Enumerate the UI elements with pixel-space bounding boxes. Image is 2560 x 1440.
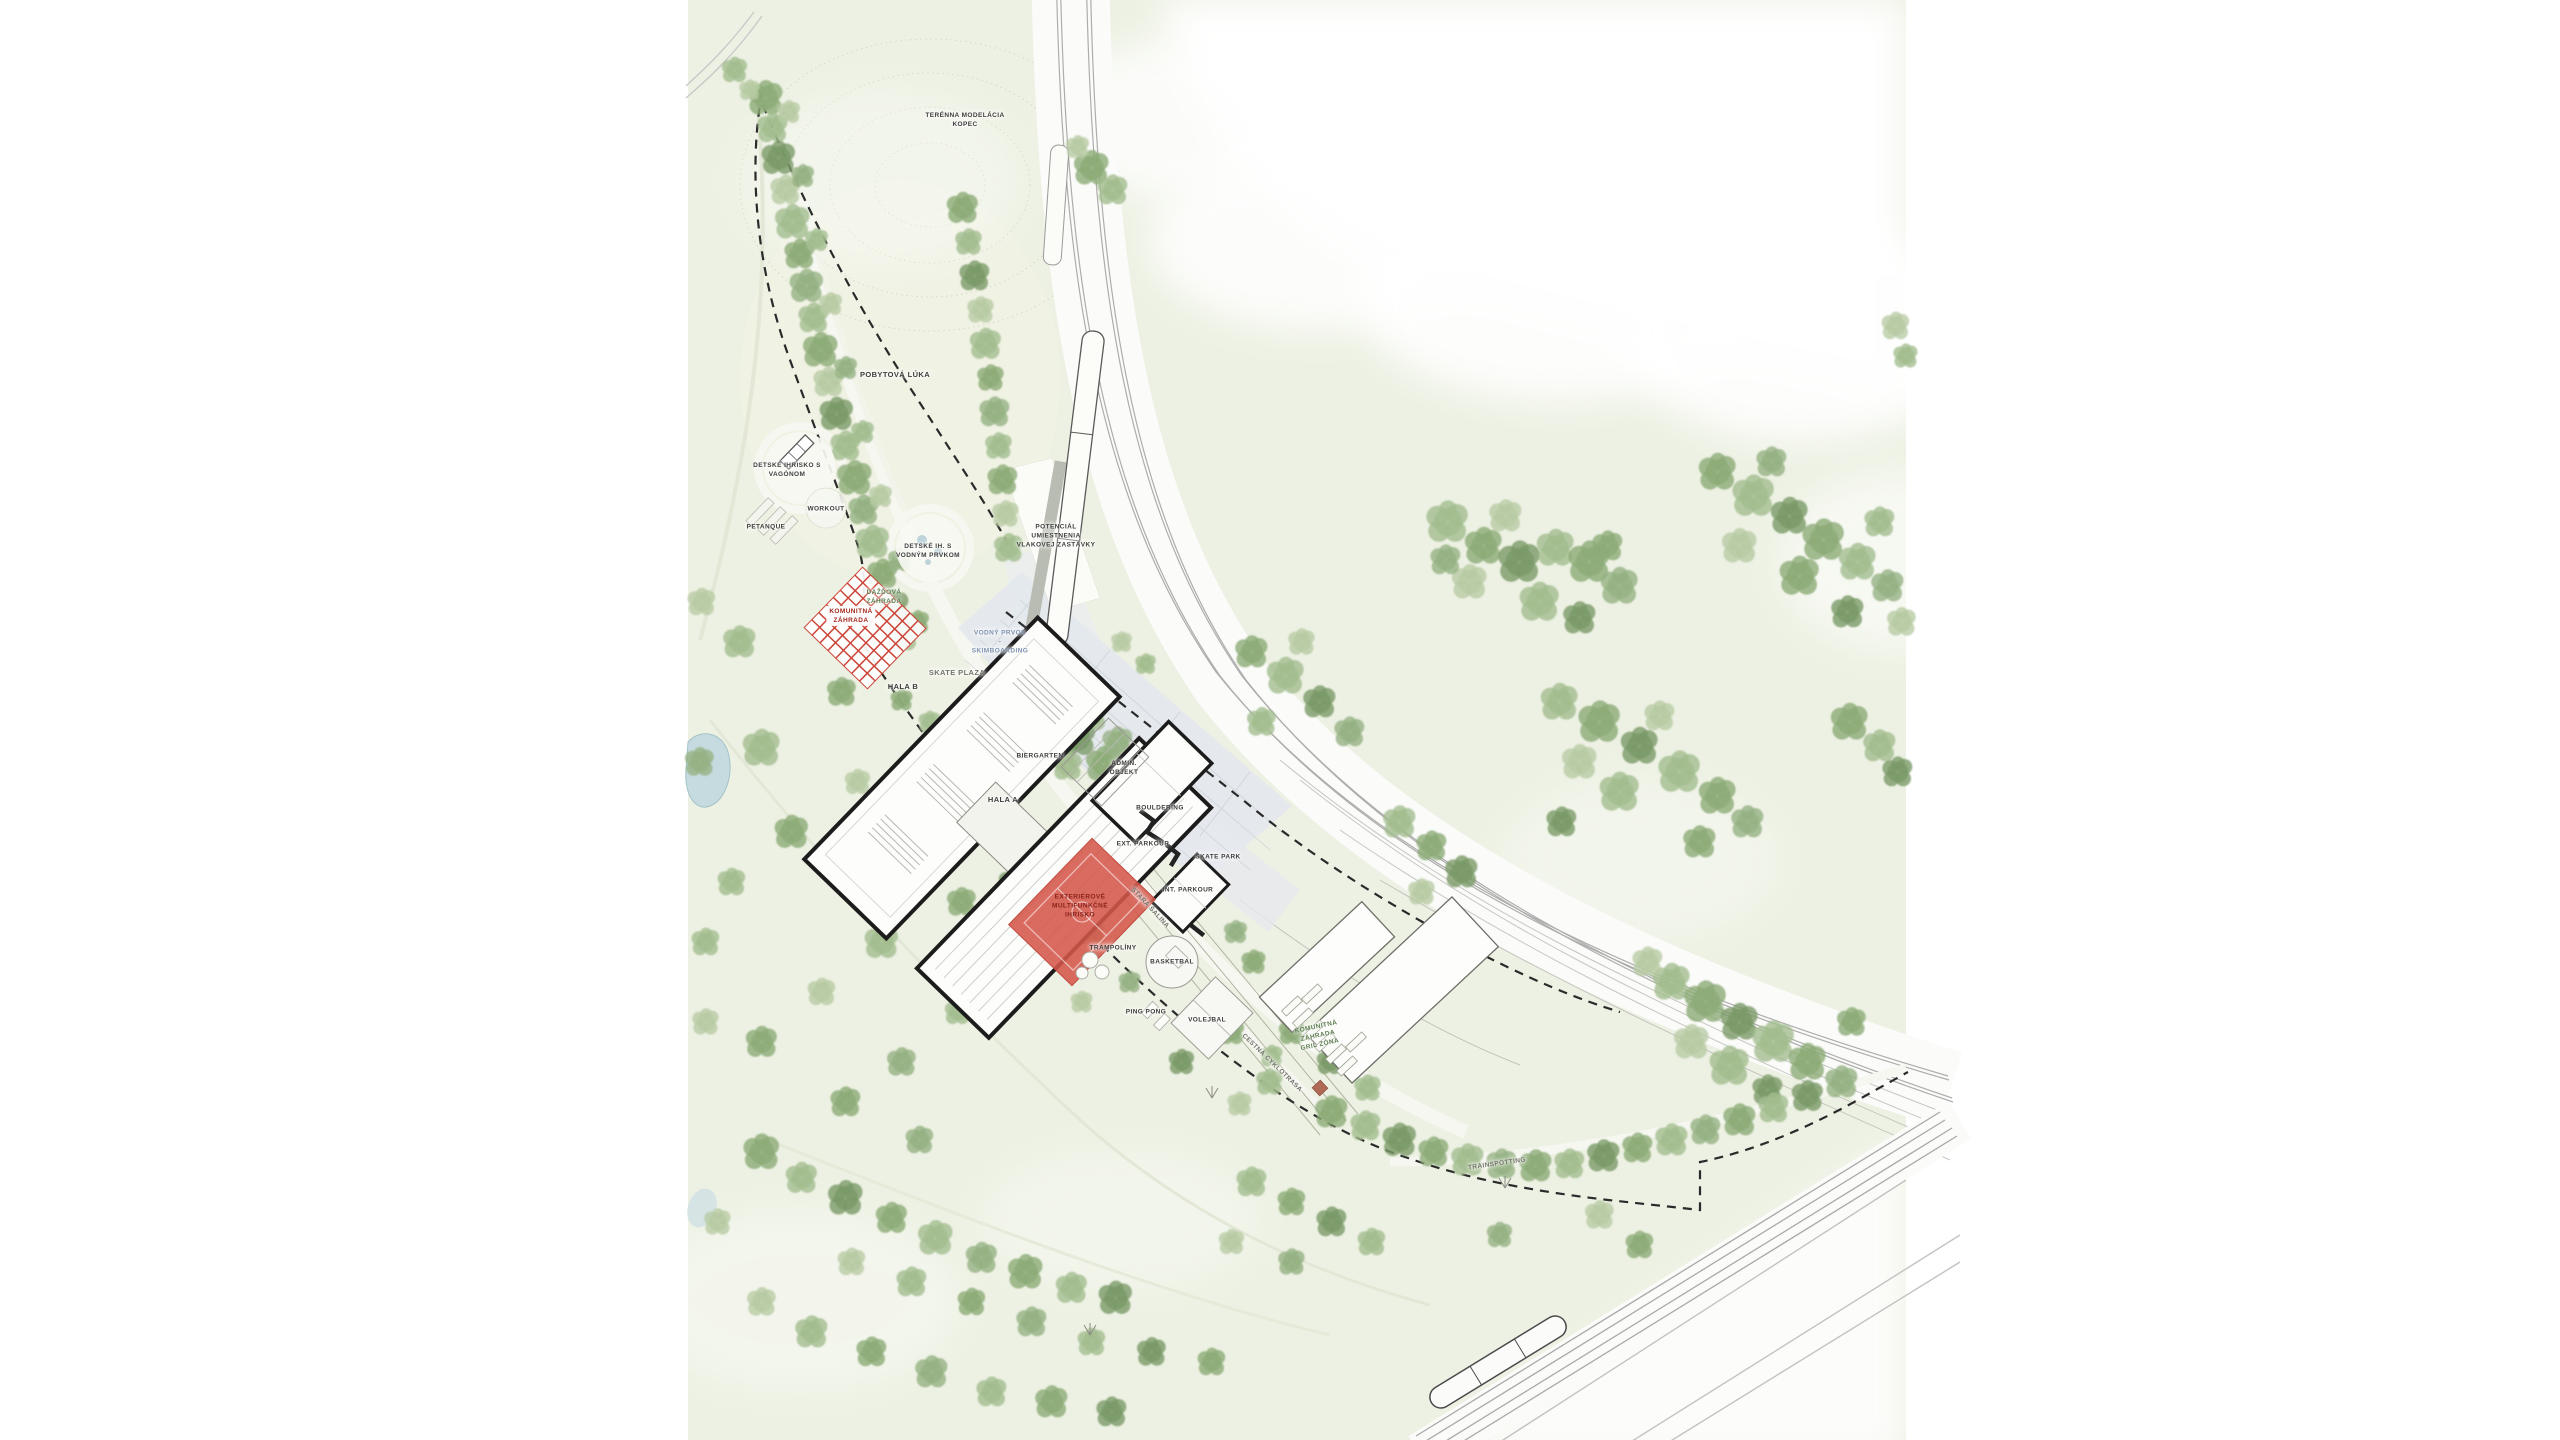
site-plan-canvas: TERÉNNA MODELÁCIA KOPEC POBYTOVÁ LÚKA DE… — [0, 0, 2560, 1440]
site-plan-drawing — [0, 0, 2560, 1440]
